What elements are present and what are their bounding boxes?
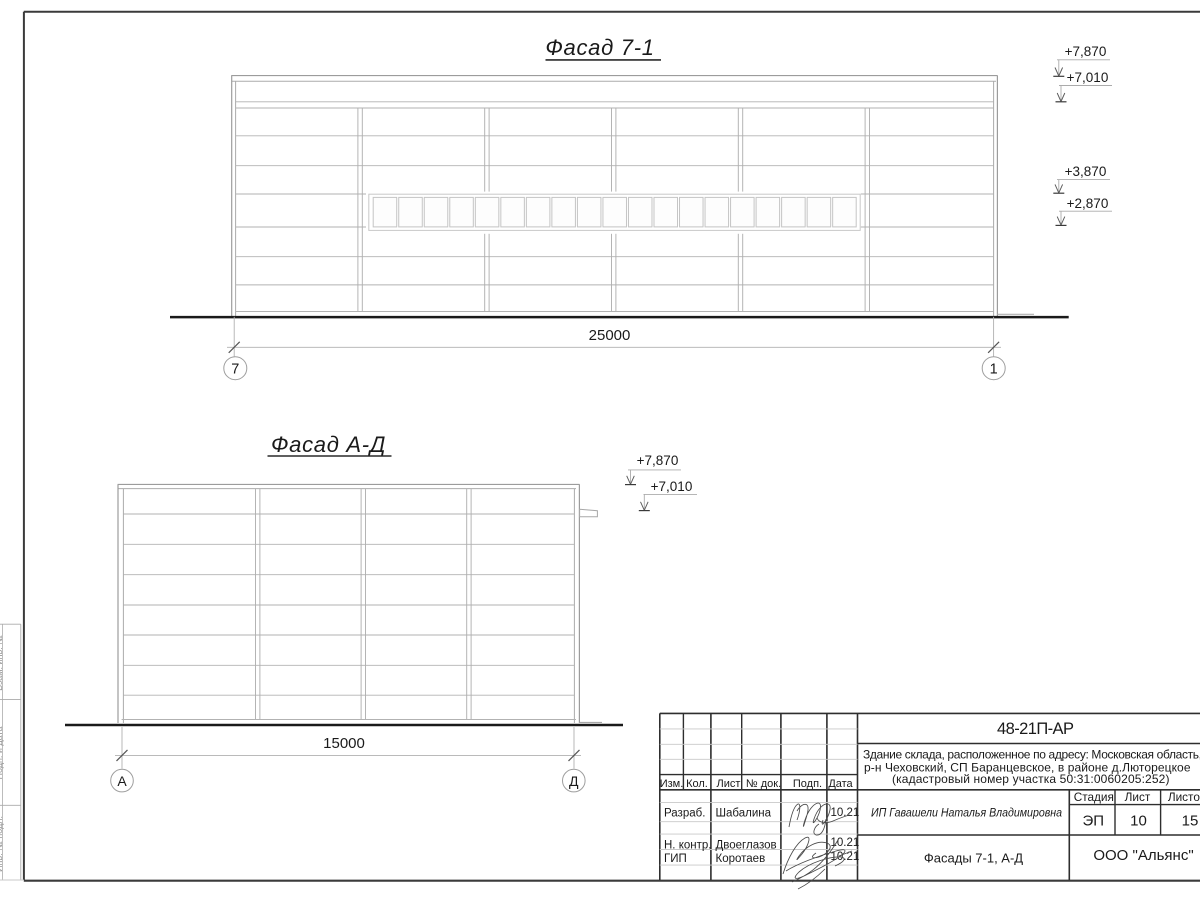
svg-text:25000: 25000: [589, 327, 631, 344]
svg-text:(кадастровый номер участка 50:: (кадастровый номер участка 50:31:0060205…: [892, 772, 1170, 786]
svg-text:№ док.: № док.: [746, 778, 781, 790]
svg-text:ИП Гавашели Наталья Владимиров: ИП Гавашели Наталья Владимировна: [871, 807, 1062, 819]
svg-text:Взам. инв. №: Взам. инв. №: [0, 635, 4, 691]
svg-text:+2,870: +2,870: [1067, 196, 1109, 211]
svg-text:Стадия: Стадия: [1074, 790, 1114, 804]
svg-text:Фасад 7-1: Фасад 7-1: [545, 35, 654, 60]
svg-text:Н. контр.: Н. контр.: [664, 839, 711, 851]
svg-text:Фасады 7-1, А-Д: Фасады 7-1, А-Д: [924, 851, 1023, 866]
svg-text:ЭП: ЭП: [1083, 812, 1105, 829]
svg-text:Инв. № подл.: Инв. № подл.: [0, 816, 4, 872]
svg-text:10.21: 10.21: [831, 807, 860, 819]
svg-text:Лист: Лист: [1125, 790, 1151, 804]
svg-text:10.21: 10.21: [831, 837, 860, 849]
svg-text:Листов: Листов: [1168, 790, 1200, 804]
svg-text:Лист: Лист: [717, 778, 741, 790]
svg-text:Шабалина: Шабалина: [716, 808, 772, 820]
svg-text:48-21П-АР: 48-21П-АР: [997, 720, 1074, 738]
svg-text:Кол.: Кол.: [686, 778, 708, 790]
svg-text:Подп. и дата: Подп. и дата: [0, 726, 4, 779]
svg-text:ООО "Альянс": ООО "Альянс": [1093, 847, 1193, 864]
svg-text:Коротаев: Коротаев: [716, 853, 766, 865]
svg-text:ГИП: ГИП: [664, 853, 687, 865]
svg-text:15: 15: [1182, 812, 1199, 829]
svg-text:+7,010: +7,010: [651, 479, 693, 494]
svg-text:+7,870: +7,870: [1065, 44, 1107, 59]
svg-text:Подп.: Подп.: [793, 778, 822, 790]
svg-text:Д: Д: [569, 773, 579, 789]
svg-text:7: 7: [231, 361, 239, 377]
svg-text:Дата: Дата: [828, 778, 853, 790]
svg-text:Разраб.: Разраб.: [664, 807, 705, 819]
svg-text:1: 1: [990, 361, 998, 377]
svg-text:Здание склада, расположенное п: Здание склада, расположенное по адресу: …: [863, 747, 1200, 761]
svg-text:15000: 15000: [323, 735, 365, 752]
svg-text:10: 10: [1130, 812, 1147, 829]
svg-text:Фасад А-Д: Фасад А-Д: [271, 432, 386, 457]
svg-text:+7,010: +7,010: [1067, 70, 1109, 85]
svg-text:+3,870: +3,870: [1065, 164, 1107, 179]
svg-text:Изм.: Изм.: [660, 778, 684, 790]
svg-text:+7,870: +7,870: [637, 453, 679, 468]
svg-text:А: А: [117, 773, 127, 789]
svg-text:Двоеглазов: Двоеглазов: [716, 839, 777, 851]
